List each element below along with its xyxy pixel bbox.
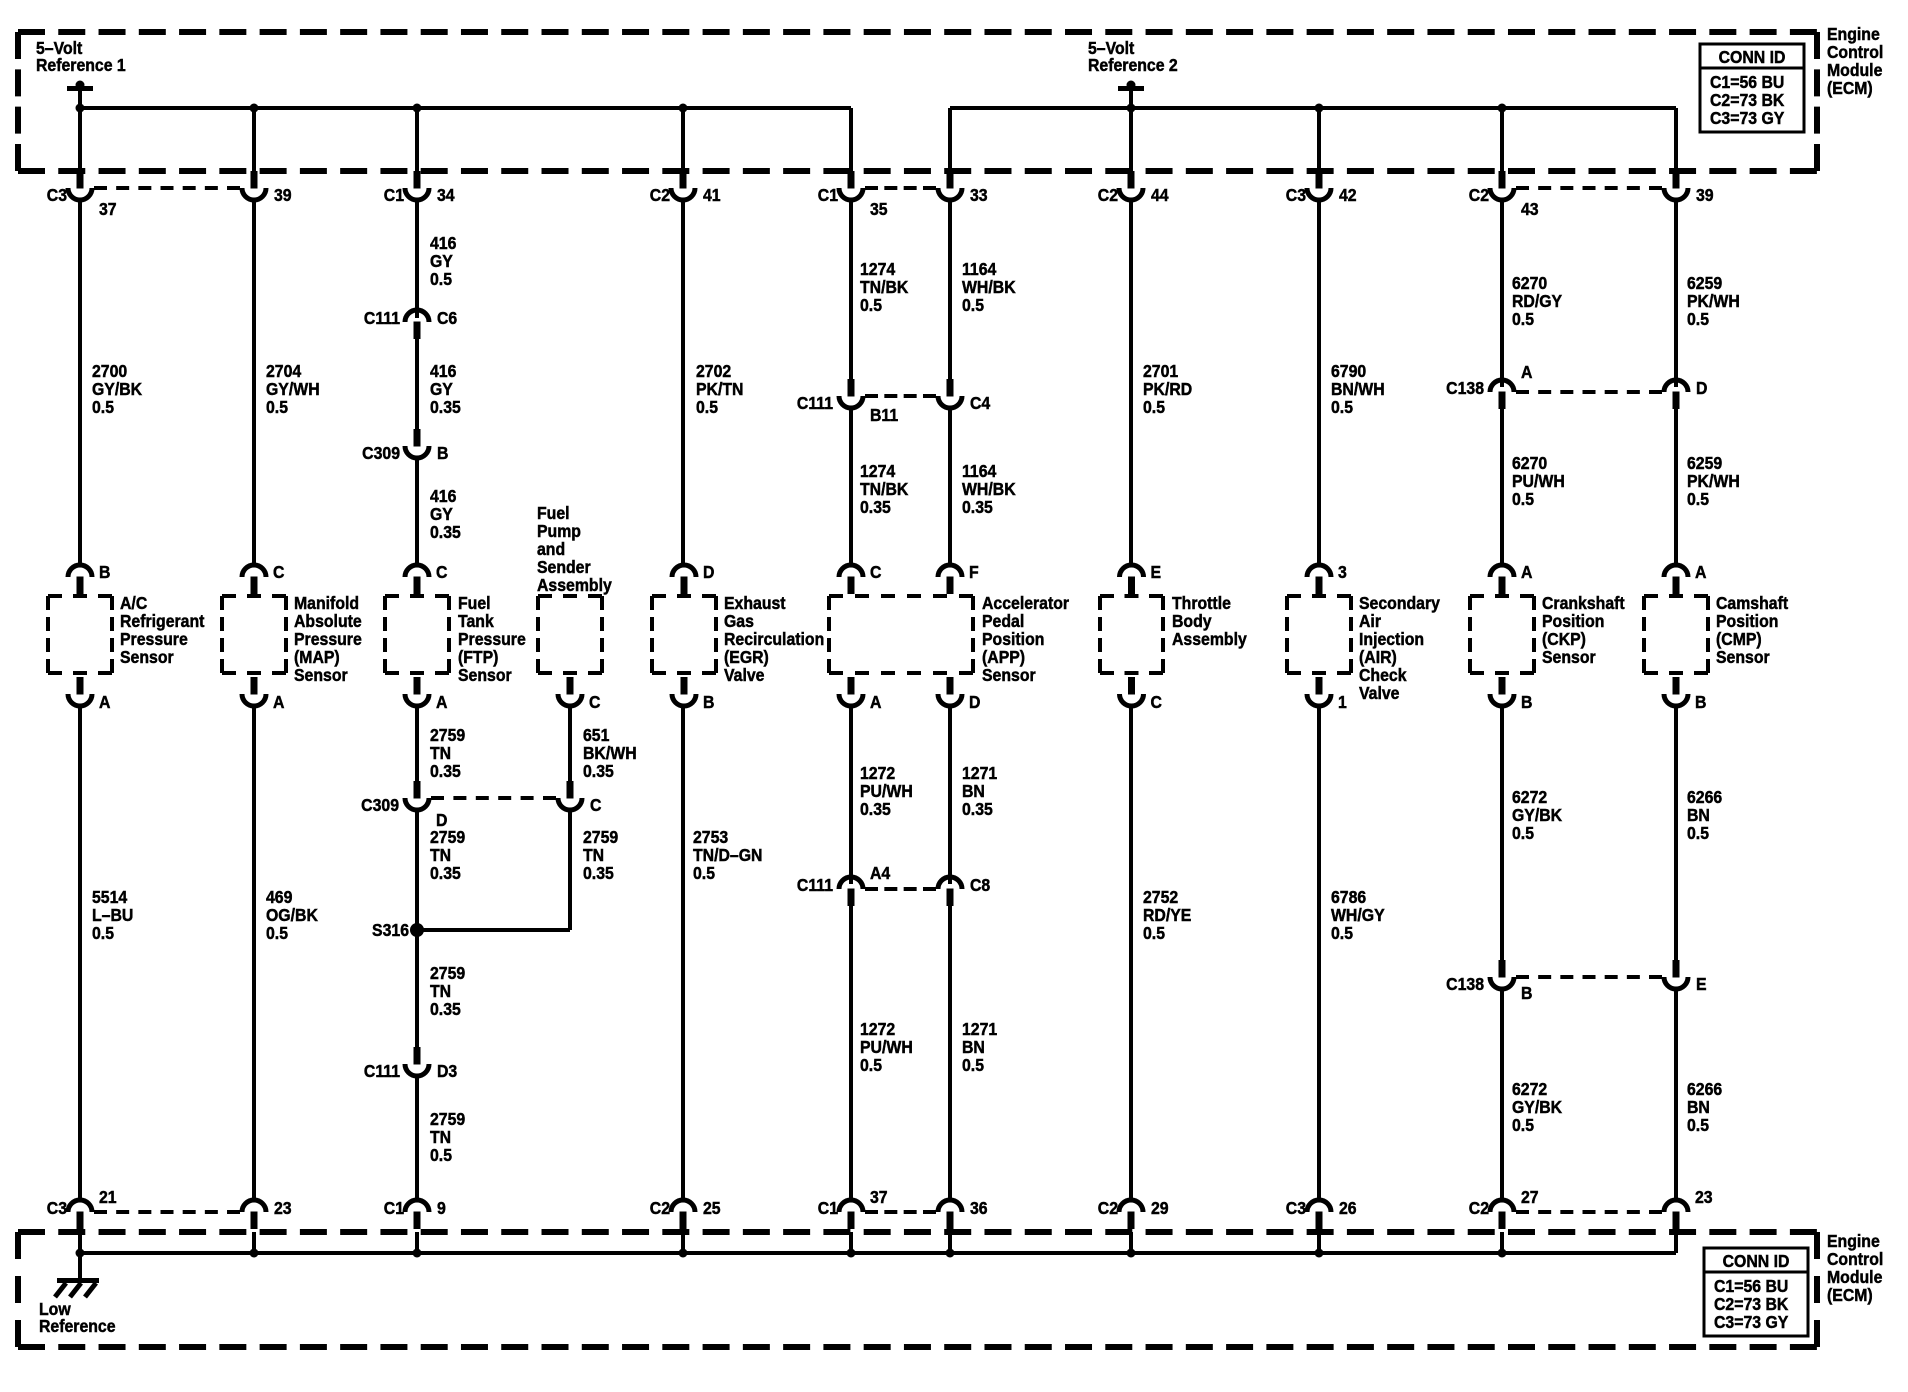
svg-text:0.35: 0.35: [583, 761, 614, 781]
svg-text:0.5: 0.5: [860, 295, 882, 315]
svg-text:0.35: 0.35: [430, 863, 461, 883]
svg-text:0.35: 0.35: [583, 863, 614, 883]
svg-text:C4: C4: [970, 393, 991, 413]
svg-text:C: C: [589, 692, 600, 712]
svg-text:0.5: 0.5: [1512, 489, 1534, 509]
svg-text:B: B: [99, 562, 110, 582]
svg-text:D3: D3: [437, 1061, 457, 1081]
svg-text:Valve: Valve: [724, 665, 764, 685]
svg-text:1: 1: [1338, 692, 1347, 712]
svg-text:C3: C3: [1286, 185, 1306, 205]
svg-text:C3=73 GY: C3=73 GY: [1710, 108, 1785, 128]
svg-text:0.35: 0.35: [962, 799, 993, 819]
svg-text:0.5: 0.5: [1331, 397, 1353, 417]
svg-text:B: B: [437, 443, 448, 463]
svg-text:C: C: [273, 562, 284, 582]
svg-text:A: A: [273, 692, 284, 712]
svg-text:A: A: [436, 692, 447, 712]
svg-text:C3: C3: [47, 1198, 67, 1218]
svg-text:Sensor: Sensor: [1716, 647, 1770, 667]
svg-text:0.5: 0.5: [266, 923, 288, 943]
svg-text:D: D: [703, 562, 714, 582]
svg-text:0.5: 0.5: [92, 923, 114, 943]
svg-text:0.35: 0.35: [430, 397, 461, 417]
svg-text:23: 23: [1695, 1187, 1713, 1207]
svg-text:C309: C309: [362, 443, 400, 463]
svg-text:Sensor: Sensor: [982, 665, 1036, 685]
svg-text:0.5: 0.5: [1143, 923, 1165, 943]
svg-text:0.5: 0.5: [1512, 823, 1534, 843]
svg-text:Assembly: Assembly: [537, 575, 612, 595]
svg-text:Valve: Valve: [1359, 683, 1399, 703]
svg-text:(ECM): (ECM): [1827, 1285, 1873, 1305]
svg-text:C8: C8: [970, 875, 990, 895]
svg-text:CONN ID: CONN ID: [1723, 1251, 1790, 1271]
svg-text:C2: C2: [1098, 185, 1118, 205]
svg-text:C111: C111: [364, 308, 400, 328]
svg-text:A: A: [1521, 562, 1532, 582]
svg-text:Sensor: Sensor: [458, 665, 512, 685]
svg-text:C: C: [1151, 692, 1162, 712]
svg-text:9: 9: [437, 1198, 446, 1218]
svg-text:F: F: [969, 562, 979, 582]
svg-text:Reference 1: Reference 1: [36, 55, 126, 75]
svg-text:33: 33: [970, 185, 988, 205]
svg-text:43: 43: [1521, 199, 1539, 219]
svg-text:21: 21: [99, 1187, 117, 1207]
svg-text:36: 36: [970, 1198, 988, 1218]
svg-text:C111: C111: [797, 875, 833, 895]
svg-text:0.5: 0.5: [1331, 923, 1353, 943]
svg-text:0.35: 0.35: [430, 761, 461, 781]
svg-text:C1: C1: [384, 1198, 404, 1218]
svg-text:Sensor: Sensor: [294, 665, 348, 685]
svg-text:0.5: 0.5: [1687, 1115, 1709, 1135]
svg-text:E: E: [1696, 974, 1707, 994]
svg-text:B: B: [1521, 983, 1532, 1003]
svg-text:Sensor: Sensor: [120, 647, 174, 667]
svg-text:0.5: 0.5: [860, 1055, 882, 1075]
svg-text:0.5: 0.5: [1512, 309, 1534, 329]
svg-text:0.5: 0.5: [430, 1145, 452, 1165]
svg-text:44: 44: [1151, 185, 1169, 205]
svg-text:0.5: 0.5: [430, 269, 452, 289]
svg-text:C1: C1: [818, 1198, 838, 1218]
svg-text:C: C: [590, 795, 601, 815]
svg-text:39: 39: [1696, 185, 1714, 205]
svg-text:E: E: [1151, 562, 1162, 582]
svg-text:Sensor: Sensor: [1542, 647, 1596, 667]
svg-text:0.5: 0.5: [1687, 489, 1709, 509]
svg-text:Reference 2: Reference 2: [1088, 55, 1178, 75]
svg-text:B: B: [703, 692, 714, 712]
svg-text:0.35: 0.35: [430, 522, 461, 542]
svg-text:0.35: 0.35: [860, 799, 891, 819]
svg-text:CONN ID: CONN ID: [1719, 47, 1786, 67]
svg-text:A: A: [1695, 562, 1706, 582]
svg-text:A: A: [99, 692, 110, 712]
svg-text:0.5: 0.5: [1512, 1115, 1534, 1135]
svg-text:42: 42: [1339, 185, 1357, 205]
svg-text:Assembly: Assembly: [1172, 629, 1247, 649]
svg-text:S316: S316: [372, 920, 409, 940]
svg-text:D: D: [969, 692, 980, 712]
svg-text:0.5: 0.5: [962, 1055, 984, 1075]
svg-text:C2: C2: [1469, 185, 1489, 205]
svg-text:C3: C3: [1286, 1198, 1306, 1218]
svg-text:C1: C1: [818, 185, 838, 205]
svg-text:C138: C138: [1446, 378, 1484, 398]
svg-text:0.5: 0.5: [92, 397, 114, 417]
svg-text:34: 34: [437, 185, 455, 205]
svg-text:C: C: [870, 562, 881, 582]
svg-text:C3: C3: [47, 185, 67, 205]
svg-text:(ECM): (ECM): [1827, 78, 1873, 98]
svg-text:A: A: [1521, 362, 1532, 382]
svg-text:39: 39: [274, 185, 292, 205]
svg-text:C111: C111: [797, 393, 833, 413]
svg-text:29: 29: [1151, 1198, 1169, 1218]
svg-text:26: 26: [1339, 1198, 1357, 1218]
svg-text:C138: C138: [1446, 974, 1484, 994]
svg-text:0.5: 0.5: [1143, 397, 1165, 417]
svg-text:0.35: 0.35: [860, 497, 891, 517]
svg-text:41: 41: [703, 185, 721, 205]
svg-text:37: 37: [870, 1187, 888, 1207]
svg-text:Reference: Reference: [39, 1316, 116, 1336]
svg-text:3: 3: [1338, 562, 1347, 582]
svg-text:C2: C2: [1098, 1198, 1118, 1218]
svg-text:0.5: 0.5: [696, 397, 718, 417]
svg-text:C3=73 GY: C3=73 GY: [1714, 1312, 1789, 1332]
svg-text:C2: C2: [650, 185, 670, 205]
svg-text:C111: C111: [364, 1061, 400, 1081]
svg-text:D: D: [1696, 378, 1707, 398]
svg-text:B: B: [1695, 692, 1706, 712]
svg-text:A: A: [870, 692, 881, 712]
svg-text:0.5: 0.5: [1687, 309, 1709, 329]
svg-text:C2: C2: [650, 1198, 670, 1218]
svg-text:B: B: [1521, 692, 1532, 712]
svg-text:C6: C6: [437, 308, 457, 328]
svg-text:A4: A4: [870, 863, 891, 883]
svg-text:23: 23: [274, 1198, 292, 1218]
svg-text:C309: C309: [361, 795, 399, 815]
svg-text:C: C: [436, 562, 447, 582]
svg-text:0.5: 0.5: [266, 397, 288, 417]
svg-text:0.35: 0.35: [430, 999, 461, 1019]
svg-text:0.5: 0.5: [1687, 823, 1709, 843]
svg-text:0.5: 0.5: [693, 863, 715, 883]
svg-text:27: 27: [1521, 1187, 1539, 1207]
svg-text:B11: B11: [870, 405, 898, 425]
svg-text:25: 25: [703, 1198, 721, 1218]
svg-text:C2: C2: [1469, 1198, 1489, 1218]
svg-text:0.35: 0.35: [962, 497, 993, 517]
svg-text:C1: C1: [384, 185, 404, 205]
svg-text:0.5: 0.5: [962, 295, 984, 315]
svg-text:37: 37: [99, 199, 117, 219]
svg-text:35: 35: [870, 199, 888, 219]
